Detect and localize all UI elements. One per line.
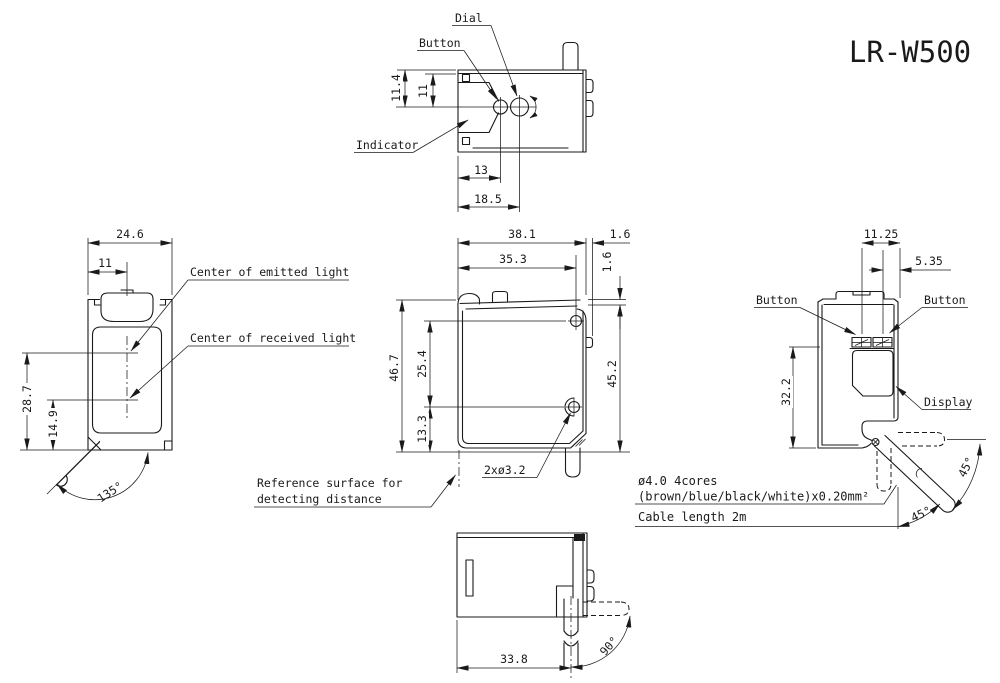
label-dial: Dial bbox=[455, 11, 483, 25]
dim-side-46-7: 46.7 bbox=[387, 354, 401, 382]
dim-right-11-25: 11.25 bbox=[864, 227, 899, 241]
dim-side-1-6-top: 1.6 bbox=[610, 227, 631, 241]
dim-front-28-7: 28.7 bbox=[20, 385, 34, 413]
dim-side-45-2: 45.2 bbox=[605, 360, 619, 388]
dim-top-11-4: 11.4 bbox=[389, 74, 403, 102]
top-view: 11.4 11 13 18.5 Dial Button Indicator bbox=[354, 11, 593, 212]
right-view: 11.25 5.35 32.2 45° 45° Button Button Di… bbox=[635, 227, 986, 529]
label-button-left: Button bbox=[756, 293, 798, 307]
dim-side-38-1: 38.1 bbox=[508, 227, 536, 241]
label-button-right: Button bbox=[924, 293, 966, 307]
dim-side-25-4: 25.4 bbox=[415, 350, 429, 378]
beam-slot bbox=[466, 560, 473, 596]
dim-bottom-33-8: 33.8 bbox=[500, 652, 528, 666]
drawing-title: LR-W500 bbox=[849, 35, 971, 69]
lens-hood-edge bbox=[574, 534, 585, 541]
label-indicator: Indicator bbox=[356, 138, 418, 152]
dim-top-11: 11 bbox=[416, 84, 430, 98]
reference-surface-label: Reference surface for detecting distance bbox=[254, 475, 456, 507]
front-view-linework bbox=[47, 290, 172, 494]
top-view-labels: Dial Button Indicator bbox=[354, 11, 517, 153]
label-reference-line2: detecting distance bbox=[257, 492, 382, 506]
dim-front-24-6: 24.6 bbox=[116, 227, 144, 241]
dim-right-5-35: 5.35 bbox=[915, 254, 943, 268]
dim-bottom-90: 90° bbox=[597, 634, 621, 659]
front-view-labels: Center of emitted light Center of receiv… bbox=[130, 265, 356, 398]
dim-right-45-lower: 45° bbox=[909, 503, 934, 524]
dimensional-drawing: LR-W500 11.4 11 13 18 bbox=[0, 0, 1000, 683]
label-button: Button bbox=[419, 36, 461, 50]
right-view-dimensions: 11.25 5.35 32.2 45° 45° bbox=[779, 227, 986, 529]
dim-side-1-6-right: 1.6 bbox=[600, 252, 614, 273]
dim-front-11: 11 bbox=[98, 256, 112, 270]
label-center-emitted-light: Center of emitted light bbox=[190, 265, 349, 279]
label-center-received-light: Center of received light bbox=[190, 331, 356, 345]
front-view-dimensions: 24.6 11 28.7 14.9 135° bbox=[20, 227, 172, 505]
cable-note-line3: Cable length 2m bbox=[638, 510, 746, 524]
cable-note-line2: (brown/blue/black/white)x0.20mm² bbox=[638, 490, 869, 504]
side-view-dimensions: 38.1 1.6 35.3 1.6 46.7 25.4 13.3 45.2 2x… bbox=[387, 227, 630, 478]
dim-front-14-9: 14.9 bbox=[46, 410, 60, 438]
dim-front-135: 135° bbox=[95, 479, 126, 506]
top-view-linework bbox=[396, 43, 593, 213]
dim-top-13: 13 bbox=[474, 163, 488, 177]
bottom-view: 33.8 90° bbox=[457, 533, 630, 680]
dim-side-35-3: 35.3 bbox=[499, 252, 527, 266]
dim-side-13-3: 13.3 bbox=[415, 415, 429, 443]
label-reference-line1: Reference surface for bbox=[257, 476, 402, 490]
cable-note-line1: ø4.0 4cores bbox=[638, 474, 717, 488]
dim-right-32-2: 32.2 bbox=[779, 378, 793, 406]
bottom-view-dimensions: 33.8 90° bbox=[457, 616, 630, 673]
cable-note: ø4.0 4cores (brown/blue/black/white)x0.2… bbox=[635, 474, 898, 527]
label-display: Display bbox=[924, 395, 973, 409]
drawing-page: LR-W500 11.4 11 13 18 bbox=[0, 0, 1000, 683]
dim-top-18-5: 18.5 bbox=[474, 192, 502, 206]
front-view: 24.6 11 28.7 14.9 135° Center of emitted… bbox=[20, 227, 356, 505]
label-mounting-holes: 2xø3.2 bbox=[484, 463, 526, 477]
